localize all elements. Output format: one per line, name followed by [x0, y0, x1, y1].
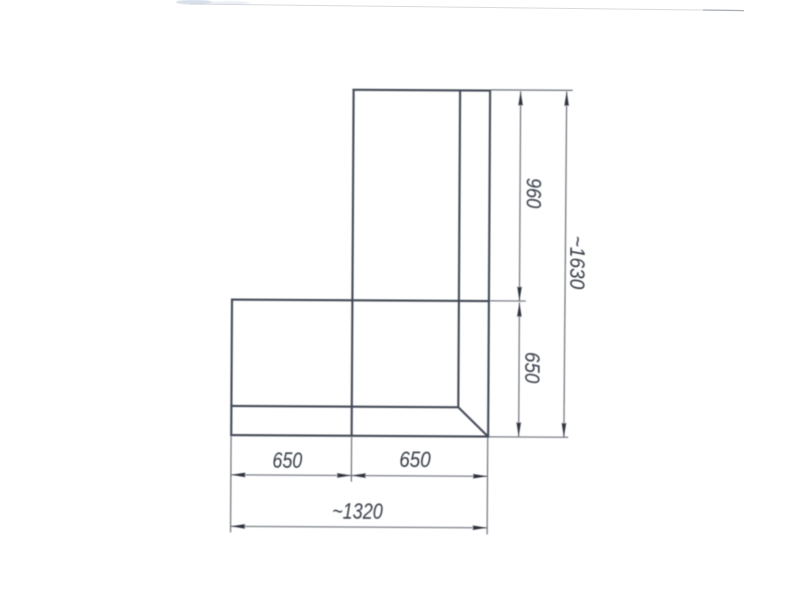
svg-text:~1320: ~1320 — [332, 499, 383, 524]
svg-text:650: 650 — [520, 352, 543, 384]
svg-text:~1630: ~1630 — [565, 236, 588, 290]
svg-text:650: 650 — [272, 448, 303, 473]
svg-text:650: 650 — [399, 447, 431, 472]
svg-text:960: 960 — [522, 178, 545, 209]
